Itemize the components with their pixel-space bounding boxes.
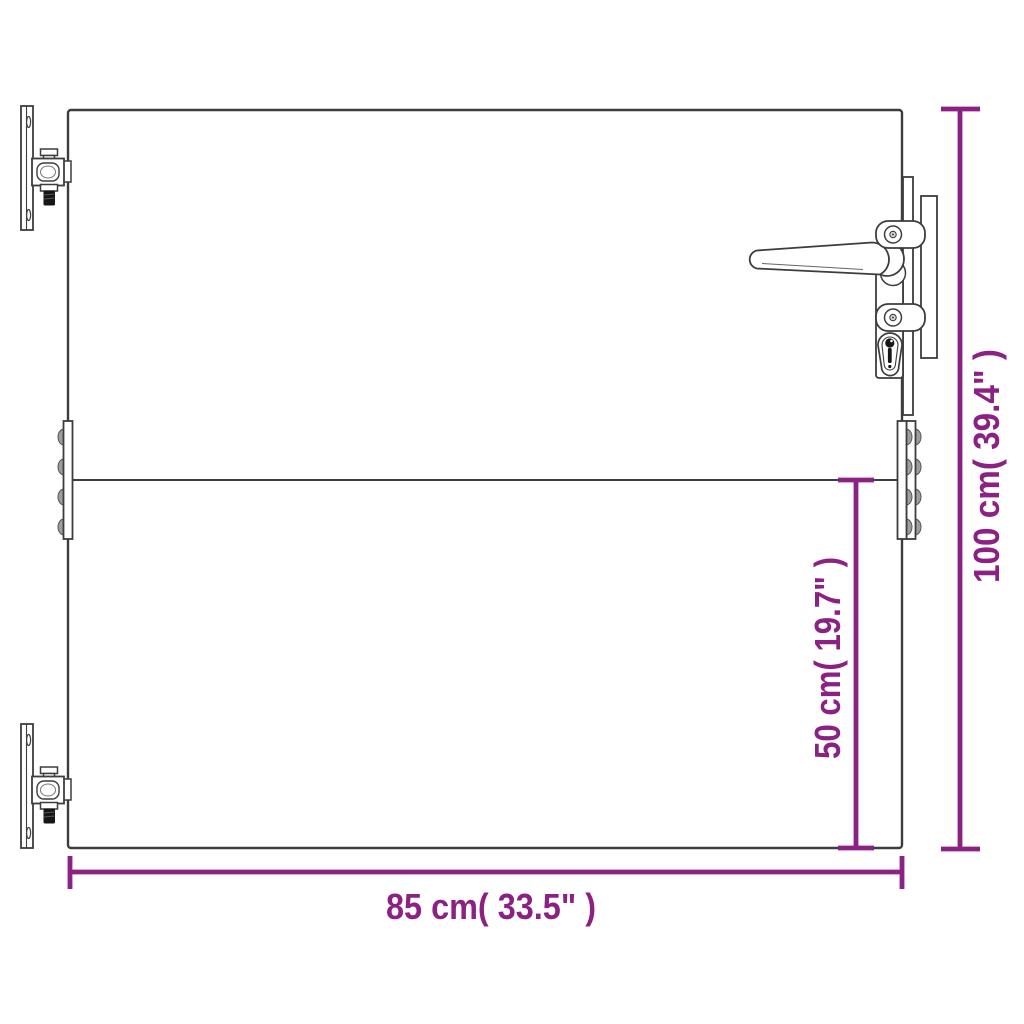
dimension-width-label: 85 cm( 33.5" )	[386, 886, 596, 927]
mid-hinge-right	[898, 421, 922, 539]
gate-dimension-diagram: 100 cm( 39.4" ) 50 cm( 19.7" ) 85 cm( 33…	[0, 0, 1024, 1024]
dimension-diagram-canvas: 100 cm( 39.4" ) 50 cm( 19.7" ) 85 cm( 33…	[0, 0, 1024, 1024]
euro-cylinder-lock	[878, 333, 902, 376]
dimension-width	[70, 856, 902, 889]
dimension-height-label: 100 cm( 39.4" )	[966, 349, 1007, 583]
mid-hinge-left	[58, 421, 73, 539]
handle-clamp-top	[876, 221, 925, 248]
gate-panel	[68, 110, 902, 848]
lock-faceplate	[903, 177, 913, 415]
hinge-top-left	[21, 106, 71, 230]
dimension-inner-height-label: 50 cm( 19.7" )	[807, 557, 848, 759]
keyhole-icon	[885, 338, 894, 347]
hinge-bottom-left	[21, 724, 71, 848]
handle-clamp-bottom	[876, 304, 925, 331]
strike-plate	[921, 196, 937, 358]
